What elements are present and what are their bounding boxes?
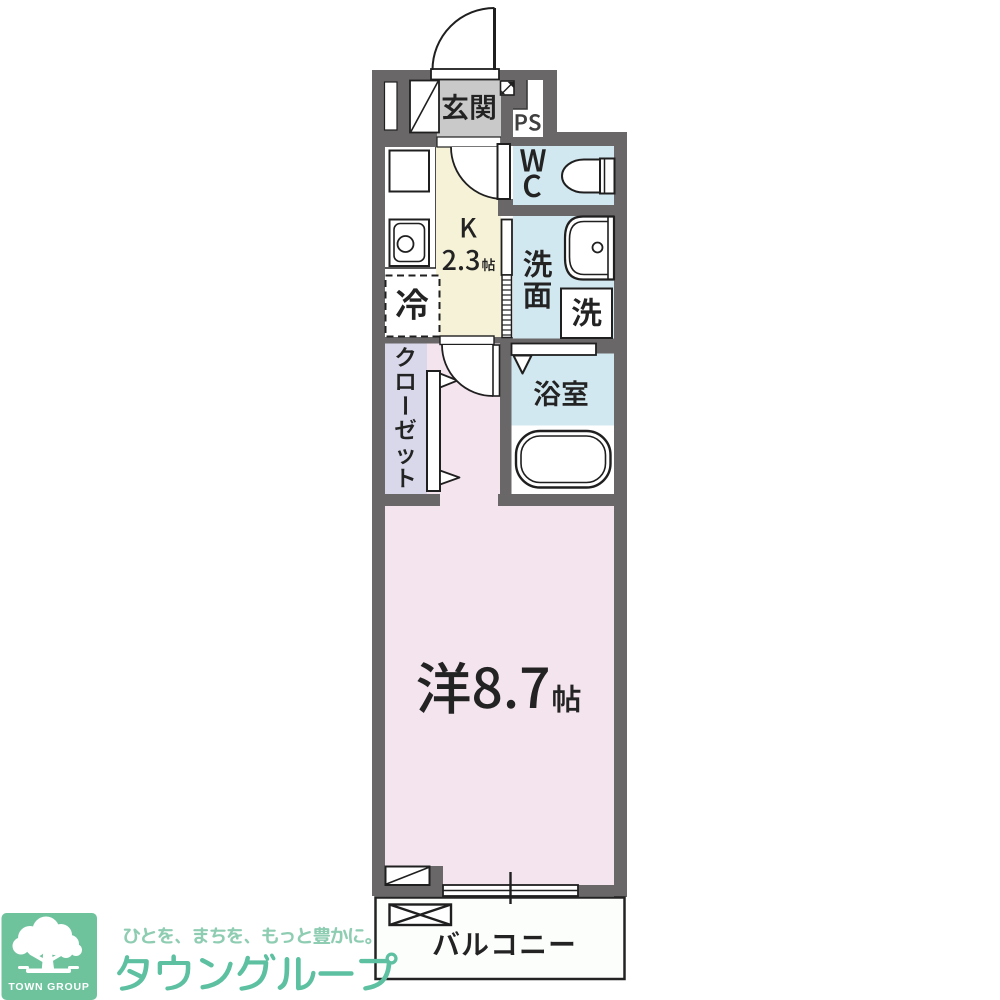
svg-text:TOWN GROUP: TOWN GROUP — [8, 981, 89, 993]
